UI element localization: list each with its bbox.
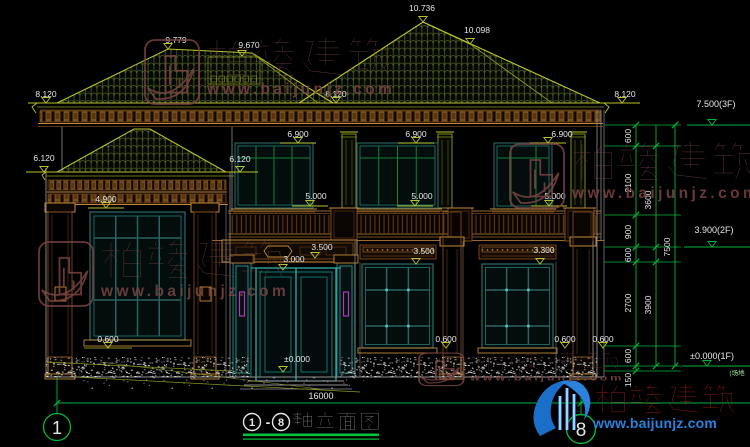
svg-text:1: 1	[249, 417, 255, 429]
svg-text:3.900(2F): 3.900(2F)	[694, 225, 733, 235]
svg-text:600: 600	[623, 129, 633, 143]
svg-text:150: 150	[623, 373, 633, 387]
svg-text:www.baijunjz.com: www.baijunjz.com	[206, 81, 395, 98]
svg-text:(场地: (场地	[729, 368, 745, 377]
svg-text:600: 600	[623, 248, 633, 262]
svg-text:www.baijunjz.com: www.baijunjz.com	[592, 415, 717, 431]
svg-text:3.500: 3.500	[413, 246, 435, 256]
svg-text:6.900: 6.900	[551, 129, 573, 139]
svg-text:www.baijunjz.com: www.baijunjz.com	[100, 283, 289, 300]
svg-text:-: -	[266, 414, 271, 430]
svg-text:600: 600	[623, 349, 633, 363]
svg-text:6.120: 6.120	[229, 154, 251, 164]
svg-text:3.500: 3.500	[311, 242, 333, 252]
svg-text:7500: 7500	[662, 237, 672, 256]
svg-text:10.098: 10.098	[464, 25, 490, 35]
svg-text:7.500(3F): 7.500(3F)	[696, 99, 735, 109]
svg-text:5.000: 5.000	[411, 191, 433, 201]
svg-text:3.000: 3.000	[283, 254, 305, 264]
svg-text:www.baijunjz.com: www.baijunjz.com	[469, 374, 624, 383]
svg-text:±0.000(1F): ±0.000(1F)	[690, 351, 734, 361]
svg-text:1: 1	[52, 418, 62, 438]
svg-text:8: 8	[278, 417, 284, 429]
svg-text:16000: 16000	[308, 391, 333, 401]
svg-text:5.000: 5.000	[305, 191, 327, 201]
svg-text:3.300: 3.300	[533, 245, 555, 255]
svg-text:±0.000: ±0.000	[284, 354, 310, 364]
svg-text:900: 900	[623, 225, 633, 239]
svg-text:www.baijunjz.com: www.baijunjz.com	[571, 185, 750, 202]
svg-text:10.736: 10.736	[409, 3, 435, 13]
svg-text:2700: 2700	[623, 293, 633, 312]
svg-text:3900: 3900	[643, 295, 653, 314]
svg-text:8: 8	[576, 420, 587, 441]
svg-text:6.120: 6.120	[33, 153, 55, 163]
svg-text:9.670: 9.670	[238, 40, 260, 50]
